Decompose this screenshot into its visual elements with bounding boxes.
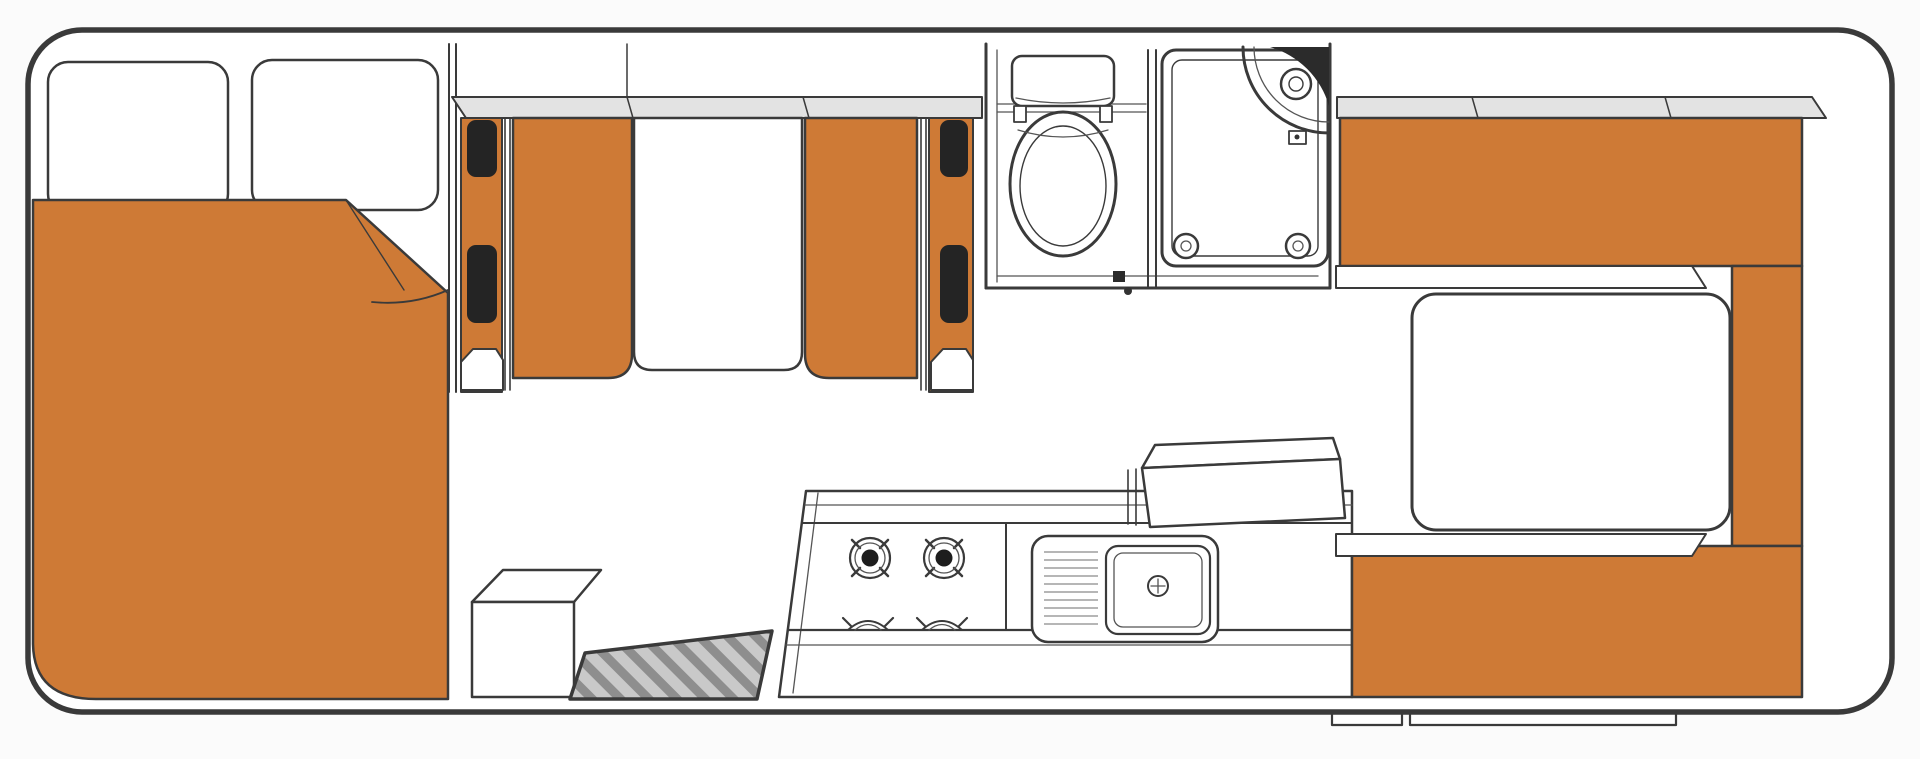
door-latch	[1113, 271, 1125, 282]
dinette-table	[634, 118, 802, 370]
seatbelt-pad	[940, 245, 968, 323]
shower-cubicle	[1162, 47, 1329, 266]
bed-duvet	[33, 200, 448, 699]
rear-bench-right	[1732, 266, 1802, 546]
overhead-lockers-front	[452, 97, 982, 118]
floorplan-canvas	[0, 0, 1920, 759]
toilet-bowl	[1010, 112, 1116, 256]
seat-cushion	[513, 118, 632, 378]
shower-drain-right	[1286, 234, 1310, 258]
rear-bench-top	[1340, 118, 1802, 266]
rear-bench-bottom	[1352, 546, 1802, 697]
seatbelt-pad	[467, 245, 497, 323]
rear-bed-slat-lower	[1336, 534, 1706, 556]
bed-pillow-right	[252, 60, 438, 210]
seat-pedestal	[461, 349, 503, 390]
dinette	[452, 97, 982, 392]
seatbelt-pad	[467, 120, 497, 177]
overhead-lockers-rear	[1337, 97, 1826, 118]
bench-cabinet-box	[1128, 438, 1345, 527]
mixer-knob	[1295, 135, 1300, 140]
toilet-cistern	[1012, 56, 1114, 106]
toilet-hinge-left	[1014, 106, 1026, 122]
step-front-face	[472, 602, 574, 697]
bed-pillow-left	[48, 62, 228, 214]
seat-cushion	[805, 118, 917, 378]
seat-pedestal	[931, 349, 973, 390]
dinette-seat-rearward	[805, 118, 973, 392]
shower-drain-left	[1174, 234, 1198, 258]
dinette-seat-forward	[461, 118, 632, 392]
motorhome-floorplan	[0, 0, 1920, 759]
shower-head	[1281, 69, 1311, 99]
sink-unit	[1032, 536, 1218, 642]
seatbelt-pad	[940, 120, 968, 177]
door-pivot	[1124, 287, 1132, 295]
toilet-hinge-right	[1100, 106, 1112, 122]
rear-table	[1412, 294, 1730, 530]
rear-bed-slat-upper	[1336, 266, 1706, 288]
box-front-face	[1142, 459, 1345, 527]
